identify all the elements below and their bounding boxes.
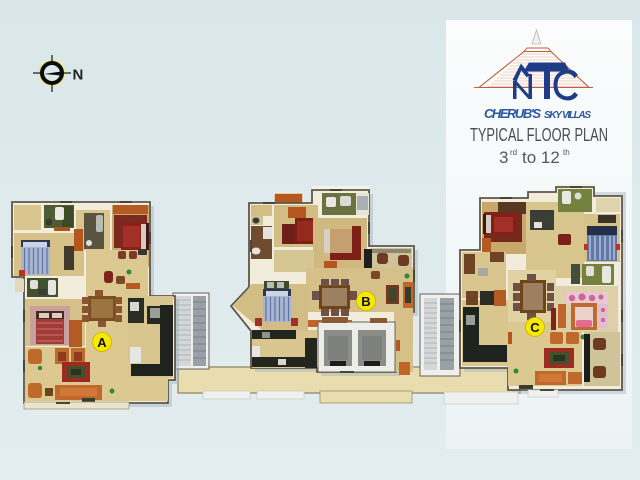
svg-text:A: A [97,335,107,350]
svg-text:rd: rd [510,148,517,157]
svg-text:N: N [73,67,84,84]
svg-text:TYPICAL FLOOR PLAN: TYPICAL FLOOR PLAN [470,124,608,145]
svg-text:C: C [530,320,540,335]
svg-text:SKY VILLAS: SKY VILLAS [544,110,591,121]
svg-text:3: 3 [499,148,508,167]
svg-text:CHERUB'S: CHERUB'S [484,106,541,121]
svg-text:B: B [361,294,370,309]
svg-text:th: th [563,148,570,157]
svg-text:to 12: to 12 [522,148,560,167]
